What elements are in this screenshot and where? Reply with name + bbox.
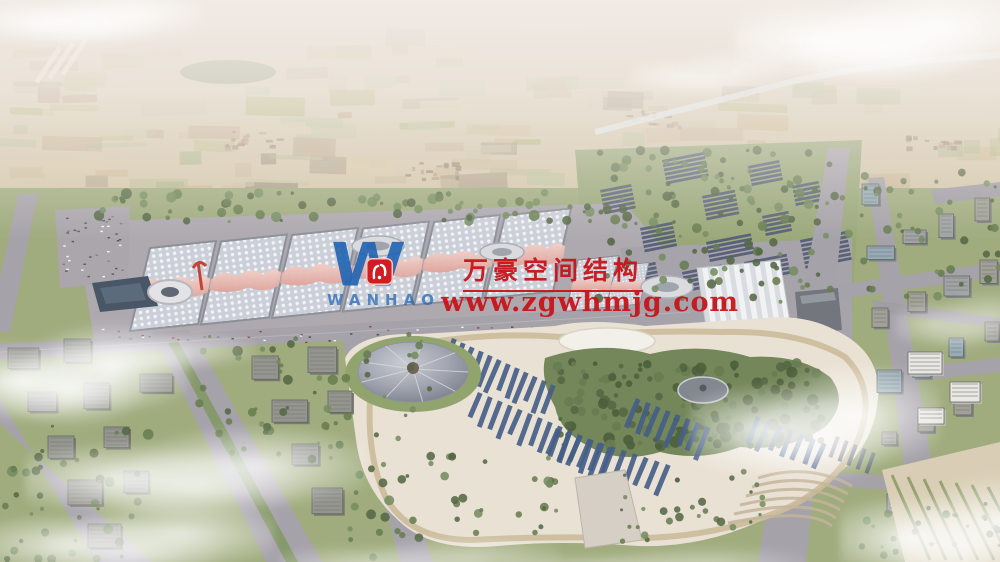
tree: [774, 202, 783, 211]
parked-vehicle: [115, 233, 118, 234]
tree: [844, 230, 852, 238]
tree: [772, 277, 780, 285]
tree: [816, 272, 821, 277]
tree: [760, 501, 766, 507]
field-patch: [338, 112, 352, 119]
parked-vehicle: [66, 269, 69, 270]
tree: [381, 462, 386, 467]
tree: [309, 212, 319, 222]
forest-tree: [781, 402, 789, 410]
forest-tree: [792, 358, 802, 368]
tree: [14, 492, 19, 497]
tree: [603, 205, 612, 214]
tree: [235, 355, 241, 361]
parked-vehicle: [63, 245, 66, 246]
tree: [451, 496, 459, 504]
forest-tree: [720, 431, 732, 443]
tree: [308, 455, 317, 464]
tree: [398, 475, 407, 484]
tree: [624, 259, 632, 267]
tree: [241, 446, 247, 452]
field-patch: [439, 80, 486, 97]
forest-tree: [638, 363, 642, 367]
field-patch: [674, 65, 732, 74]
parked-vehicle: [108, 237, 111, 238]
forest-tree: [612, 409, 620, 417]
tree: [134, 471, 140, 477]
building: [975, 198, 990, 221]
tree: [546, 456, 551, 461]
village-houses: [422, 178, 426, 181]
village-houses: [939, 144, 945, 148]
tree: [863, 517, 871, 525]
tree: [623, 474, 626, 477]
tree: [584, 203, 591, 210]
tree: [38, 465, 43, 470]
parked-vehicle: [120, 223, 123, 224]
tree: [348, 537, 353, 542]
village-houses: [649, 123, 657, 125]
field-patch: [62, 94, 97, 103]
tree: [662, 191, 671, 200]
tree: [698, 166, 705, 173]
tree: [393, 209, 402, 218]
field-patch: [330, 90, 375, 106]
forest-tree: [781, 389, 792, 400]
tree: [673, 159, 677, 163]
forest-tree: [710, 411, 718, 419]
tree: [225, 408, 231, 414]
tree: [228, 220, 231, 223]
tree: [679, 235, 682, 238]
parked-vehicle: [187, 339, 190, 340]
tree: [636, 146, 645, 155]
tree: [863, 186, 867, 190]
tree: [611, 162, 621, 172]
tree: [698, 498, 706, 506]
forest-tree: [817, 437, 824, 444]
parked-vehicle: [72, 241, 75, 242]
parked-vehicle: [66, 256, 69, 257]
forest-tree: [695, 363, 706, 374]
tree: [620, 538, 625, 543]
tree: [200, 385, 207, 392]
parked-vehicle: [107, 226, 110, 227]
tree: [532, 198, 540, 206]
field-patch: [408, 121, 440, 131]
building: [908, 352, 942, 374]
tree: [515, 197, 524, 206]
tree: [947, 199, 952, 204]
tree: [714, 174, 719, 179]
tree: [884, 510, 892, 518]
building: [252, 356, 278, 379]
tree: [663, 160, 669, 166]
tree: [701, 175, 708, 182]
forest-tree: [635, 375, 639, 379]
tree: [755, 248, 763, 256]
forest-tree: [786, 367, 797, 378]
tree: [410, 406, 416, 412]
parked-vehicle: [217, 336, 220, 337]
forest-tree: [655, 393, 663, 401]
tree: [10, 466, 16, 472]
tree: [840, 195, 846, 201]
village-houses: [678, 125, 682, 129]
tree: [679, 260, 689, 270]
village-houses: [455, 171, 459, 175]
forest-tree: [730, 360, 739, 369]
forest-tree: [577, 389, 585, 397]
parked-vehicle: [89, 256, 92, 257]
tree: [656, 228, 662, 234]
forest-tree: [780, 414, 791, 425]
field-patch: [526, 22, 584, 32]
tree: [728, 195, 733, 200]
tree: [351, 503, 359, 511]
parked-vehicle: [511, 326, 514, 327]
tree: [298, 201, 306, 209]
parked-vehicle: [102, 329, 105, 330]
tree: [276, 452, 281, 457]
tree: [448, 453, 456, 461]
tree: [225, 191, 234, 200]
tree: [91, 499, 99, 507]
tree: [140, 200, 148, 208]
tree: [415, 533, 424, 542]
parked-vehicle: [85, 227, 88, 228]
tree: [10, 547, 18, 555]
tree: [758, 513, 761, 516]
forest-tree: [647, 376, 653, 382]
tree: [103, 524, 113, 534]
building: [949, 338, 963, 357]
forest-tree: [653, 372, 664, 383]
village-houses: [421, 170, 424, 174]
tree: [367, 197, 377, 207]
tree: [247, 192, 254, 199]
tree: [756, 208, 761, 213]
forest-tree: [729, 401, 737, 409]
aerial-rendering-exhibition-campus: W WANHAO 万豪空间结构 www.zgwhmjg.com: [0, 0, 1000, 562]
forest-tree: [601, 414, 608, 421]
village-houses: [270, 145, 276, 149]
parked-vehicle: [491, 327, 494, 328]
tree: [374, 432, 379, 437]
tree: [263, 429, 269, 435]
tree: [697, 514, 701, 518]
village-houses: [934, 146, 938, 150]
tree: [958, 169, 966, 177]
field-patch: [369, 162, 385, 168]
tree: [893, 549, 899, 555]
parked-vehicle: [87, 276, 90, 277]
forest-tree: [607, 401, 616, 410]
parked-vehicle: [81, 269, 84, 270]
forest-tree: [556, 362, 562, 368]
tree: [861, 172, 869, 180]
village-houses: [913, 136, 918, 140]
field-patch: [976, 60, 1000, 65]
tree: [22, 468, 30, 476]
field-patch: [623, 57, 670, 67]
tree: [183, 217, 190, 224]
field-patch: [301, 70, 328, 78]
forest-tree: [571, 362, 576, 367]
tree: [860, 258, 867, 265]
tree: [344, 412, 352, 420]
tree: [334, 421, 338, 425]
tree: [707, 279, 716, 288]
tree: [753, 146, 762, 155]
parked-vehicle: [76, 230, 79, 231]
tree: [502, 212, 509, 219]
parked-vehicle: [305, 342, 308, 343]
tree: [800, 285, 805, 290]
tree: [620, 197, 624, 201]
tree: [41, 528, 49, 536]
tree: [687, 278, 692, 283]
tree: [604, 273, 610, 279]
tree: [406, 332, 411, 337]
tree: [908, 189, 914, 195]
forest-tree: [770, 385, 780, 395]
building: [64, 339, 91, 362]
tree: [623, 495, 627, 499]
building: [272, 400, 308, 422]
tree: [912, 529, 918, 535]
parked-vehicle: [117, 240, 120, 241]
tree: [165, 215, 170, 220]
tree: [986, 530, 993, 537]
tree: [120, 198, 126, 204]
tree: [60, 460, 67, 467]
tree: [358, 195, 366, 203]
building: [939, 214, 953, 238]
field-patch: [245, 86, 269, 95]
tree: [805, 282, 811, 288]
tree: [959, 282, 964, 287]
forest-tree: [618, 407, 628, 417]
tree: [826, 161, 832, 167]
tree: [121, 188, 132, 199]
tree: [291, 191, 294, 194]
tree: [660, 146, 670, 156]
tree: [722, 266, 728, 272]
tree: [749, 293, 757, 301]
tree: [74, 539, 78, 543]
tree: [77, 515, 82, 520]
tree: [342, 374, 351, 383]
tree: [442, 218, 447, 223]
tree: [255, 210, 264, 219]
village-houses: [405, 174, 411, 176]
parked-vehicle: [141, 335, 144, 336]
tree: [414, 205, 423, 214]
field-patch: [152, 49, 181, 58]
tree: [990, 198, 994, 202]
forest-tree: [714, 366, 724, 376]
tree: [512, 211, 518, 217]
tree: [897, 213, 902, 218]
village-houses: [226, 144, 229, 147]
tree: [226, 418, 233, 425]
tree: [779, 300, 783, 304]
parked-vehicle: [63, 264, 66, 265]
tree: [860, 213, 864, 217]
tree: [440, 472, 449, 481]
tree: [649, 154, 656, 161]
tree: [984, 518, 987, 521]
tree: [114, 196, 118, 200]
tree: [770, 151, 776, 157]
forest-tree: [726, 415, 732, 421]
tree: [363, 358, 369, 364]
tree: [597, 150, 603, 156]
field-patch: [680, 128, 743, 141]
building: [140, 374, 172, 392]
tree: [541, 189, 548, 196]
tree: [954, 513, 958, 517]
tree: [215, 430, 223, 438]
tree: [75, 458, 80, 463]
tree: [380, 512, 389, 521]
tree: [675, 478, 680, 483]
field-patch: [375, 176, 407, 184]
parked-vehicle: [377, 334, 380, 335]
parked-vehicle: [121, 270, 124, 271]
tree: [726, 256, 734, 264]
tree: [804, 199, 814, 209]
field-patch: [364, 75, 396, 89]
village-houses: [237, 144, 245, 146]
village-houses: [259, 132, 266, 134]
tree: [731, 177, 734, 180]
tree: [746, 149, 750, 153]
tree: [759, 495, 765, 501]
forest-tree: [564, 422, 571, 429]
tree: [674, 506, 680, 512]
field-patch: [85, 175, 107, 188]
field-patch: [235, 163, 252, 178]
tree: [594, 294, 603, 303]
tree: [880, 551, 887, 558]
parked-vehicle: [177, 339, 180, 340]
tree: [942, 510, 950, 518]
forest-tree: [638, 367, 643, 372]
tree: [254, 407, 257, 410]
parked-vehicle: [248, 337, 251, 338]
tree: [97, 480, 101, 484]
forest-tree: [612, 422, 621, 431]
tree: [680, 296, 685, 301]
tree: [730, 524, 737, 531]
tree: [830, 192, 839, 201]
forest-tree: [803, 406, 810, 413]
tree: [660, 507, 668, 515]
tree: [195, 399, 203, 407]
tree: [880, 545, 883, 548]
tree: [825, 201, 829, 205]
tree: [365, 372, 371, 378]
tree: [588, 219, 592, 223]
field-patch: [737, 114, 789, 132]
parked-vehicle: [142, 337, 145, 338]
tree: [69, 549, 77, 557]
tree: [814, 218, 821, 225]
village-houses: [626, 115, 633, 117]
tree: [525, 201, 533, 209]
tree: [317, 442, 320, 445]
tree: [37, 492, 43, 498]
tree: [874, 193, 878, 197]
parked-vehicle: [231, 338, 234, 339]
forest-tree: [608, 373, 616, 381]
tree: [516, 511, 522, 517]
tree: [380, 202, 383, 205]
tree: [627, 525, 631, 529]
tree: [120, 555, 124, 559]
village-houses: [419, 162, 423, 165]
field-patch: [42, 157, 102, 174]
parked-vehicle: [115, 268, 118, 269]
tree: [446, 191, 451, 196]
field-patch: [425, 143, 463, 152]
tree: [2, 503, 9, 510]
tree: [143, 429, 154, 440]
parked-vehicle: [83, 264, 86, 265]
building: [985, 322, 999, 341]
round-disc-core: [655, 282, 679, 292]
tree: [703, 231, 709, 237]
tree: [653, 213, 659, 219]
forest-tree: [734, 373, 739, 378]
building: [48, 436, 74, 458]
parked-vehicle: [103, 276, 106, 277]
field-patch: [408, 46, 474, 60]
forest-tree: [771, 371, 777, 377]
tree: [369, 553, 377, 561]
parked-vehicle: [300, 335, 303, 336]
parked-vehicle: [101, 226, 104, 227]
tree: [280, 219, 283, 222]
tree: [426, 452, 435, 461]
tree: [411, 352, 419, 360]
tree: [415, 342, 423, 350]
village-houses: [433, 173, 437, 176]
tree: [787, 181, 794, 188]
tree: [366, 509, 376, 519]
tree: [812, 187, 818, 193]
tree: [659, 276, 667, 284]
forest-tree: [810, 421, 817, 428]
tree: [168, 209, 172, 213]
tree: [455, 204, 462, 211]
tree: [793, 175, 802, 184]
tree: [280, 363, 284, 367]
tree: [409, 517, 416, 524]
field-patch: [395, 75, 409, 83]
tree: [223, 198, 231, 206]
village-houses: [444, 164, 449, 168]
tree: [34, 453, 43, 462]
tree: [208, 335, 211, 338]
village-houses: [232, 131, 235, 133]
parked-vehicle: [67, 230, 70, 231]
tree: [407, 363, 415, 371]
tree: [919, 236, 926, 243]
tree: [692, 223, 702, 233]
